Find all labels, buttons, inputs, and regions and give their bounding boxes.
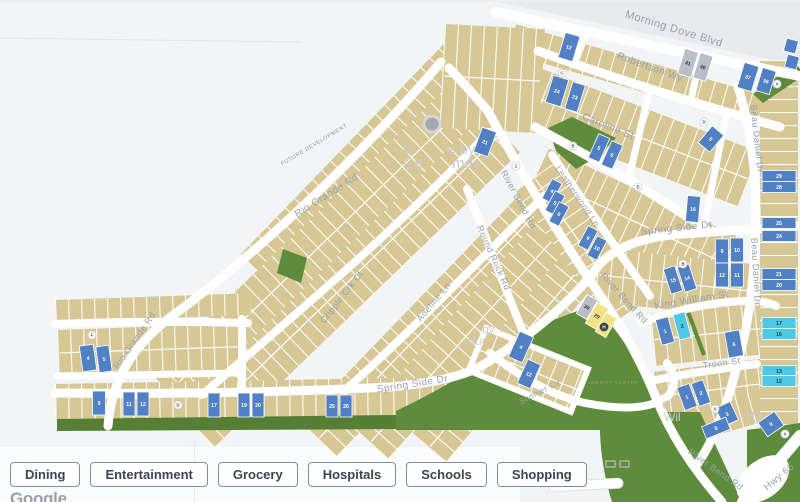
lot-12[interactable]: 12 [716,263,729,287]
map-marker-A[interactable]: A [711,405,719,413]
filter-button-grocery[interactable]: Grocery [218,462,298,487]
marker-letter: H [602,325,605,330]
lot-11[interactable]: 11 [731,263,744,287]
lot-21[interactable]: 21 [762,269,796,280]
lot-number: 24 [776,234,782,240]
community-name-fragment: Ho [746,409,762,423]
filter-button-dining[interactable]: Dining [10,462,80,487]
lot-24[interactable]: 24 [762,231,796,242]
lot-9[interactable]: 9 [716,239,729,263]
community-site-map: 1224234140373621566456910169101211151430… [0,2,800,502]
community-name-fragment: Ge [403,155,423,172]
lot-number: 9 [98,401,101,407]
lot-26[interactable]: 26 [340,395,352,417]
lot-number: 11 [126,402,132,408]
lot-number: 28 [776,185,782,191]
lot-17[interactable]: 17 [762,318,796,329]
map-marker-B[interactable]: B [679,260,687,268]
marker-letter: E [636,185,639,190]
filter-button-hospitals[interactable]: Hospitals [308,462,397,487]
poi-cluster-icon[interactable] [424,116,440,132]
map-marker-A[interactable]: A [781,430,789,438]
map-marker-D[interactable]: D [174,401,182,409]
lot-12[interactable]: 12 [762,376,796,387]
filter-button-entertainment[interactable]: Entertainment [90,462,207,487]
community-lot-map-page: 1224234140373621566456910169101211151430… [0,0,800,502]
lot-25[interactable]: 25 [326,395,338,417]
lot-number: 10 [734,248,740,254]
marker-letter: F [91,333,94,338]
lot-17[interactable]: 17 [208,393,220,417]
lot-11[interactable]: 11 [123,392,135,416]
community-name-fragment: atur [465,334,486,348]
lot-number: 19 [241,403,247,409]
map-marker-F[interactable]: F [88,331,96,339]
lot-9[interactable]: 9 [93,391,106,415]
lot-19[interactable]: 19 [238,393,250,417]
lot-number: 17 [776,321,782,327]
lot-number: 20 [255,403,261,409]
lot-number: 17 [211,403,217,409]
lot-13[interactable]: 13 [762,366,796,377]
lot-25[interactable]: 25 [762,218,796,229]
lot-number: 9 [721,249,724,255]
lot-number: 12 [140,402,146,408]
lot-29[interactable]: 29 [762,171,796,182]
lot-10[interactable]: 10 [731,238,744,262]
area-label: AMENITY CENTER [588,380,639,385]
lot-number: 12 [719,273,725,279]
lot-number: 25 [776,221,782,227]
lot-number: 25 [329,404,335,410]
filter-button-shopping[interactable]: Shopping [497,462,587,487]
lot-20[interactable]: 20 [252,393,264,417]
map-marker-C[interactable]: C [558,69,566,77]
lot-number: 12 [776,379,782,385]
lot-number: 16 [690,207,696,213]
lot-number: 16 [776,332,782,338]
lot-28[interactable]: 28 [762,182,796,193]
map-marker-D[interactable]: D [700,118,708,126]
filter-bar: DiningEntertainmentGroceryHospitalsSchoo… [10,462,587,487]
map-marker-A[interactable]: A [773,80,781,88]
map-marker-B[interactable]: B [569,142,577,150]
lot-number: 11 [734,273,740,279]
lot-12[interactable]: 12 [137,392,149,416]
map-marker-H[interactable]: H [600,323,608,331]
map-marker-1[interactable]: 1 [512,162,520,170]
lot-16[interactable]: 16 [685,195,700,222]
map-marker-E[interactable]: E [634,183,642,191]
community-name-fragment: mes [452,155,480,172]
lot-number: 26 [343,404,349,410]
lot-20[interactable]: 20 [762,280,796,291]
filter-button-schools[interactable]: Schools [406,462,487,487]
lot-number: 20 [776,283,782,289]
lot-number: 21 [776,272,782,278]
google-attribution[interactable]: Google [10,489,67,502]
street-connector [57,373,240,376]
lot-number: 13 [776,369,782,375]
lot-16[interactable]: 16 [762,329,796,340]
community-name-fragment: Wil [664,410,681,424]
lot-number: 29 [776,174,782,180]
